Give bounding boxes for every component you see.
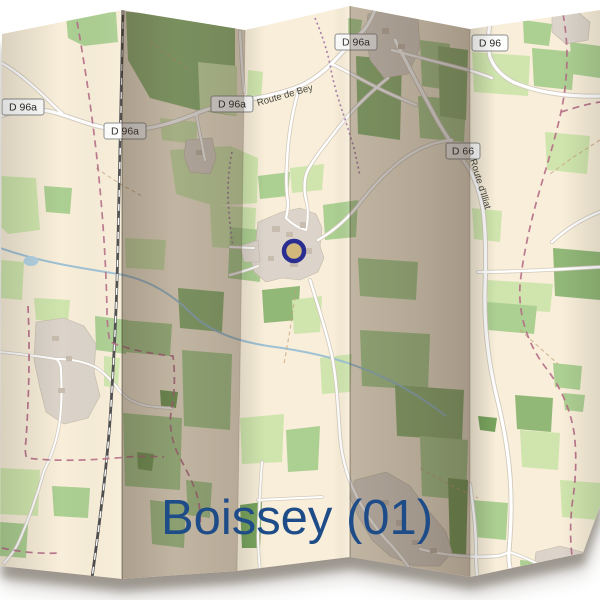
folded-map-paper: D 96a D 96a D 96a D 96a D 96 D 66 <box>0 0 600 600</box>
location-marker[interactable] <box>284 241 304 261</box>
map-title: Boissey (01) <box>161 491 433 545</box>
map-canvas[interactable]: D 96a D 96a D 96a D 96a D 96 D 66 <box>0 0 600 600</box>
folded-map-poster: D 96a D 96a D 96a D 96a D 96 D 66 <box>0 0 600 600</box>
